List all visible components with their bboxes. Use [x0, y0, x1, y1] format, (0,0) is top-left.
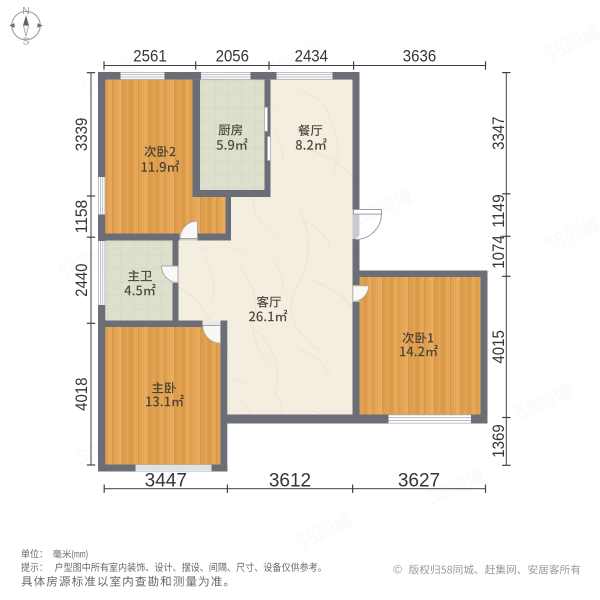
svg-text:3347: 3347 [489, 117, 508, 150]
svg-text:3447: 3447 [145, 471, 187, 492]
svg-text:4018: 4018 [72, 378, 91, 411]
svg-text:1369: 1369 [489, 424, 508, 457]
svg-text:3636: 3636 [403, 47, 436, 66]
svg-text:2434: 2434 [295, 47, 328, 66]
svg-text:4015: 4015 [489, 330, 508, 363]
svg-text:2056: 2056 [216, 47, 249, 66]
svg-text:N: N [22, 5, 30, 17]
svg-text:1074: 1074 [489, 235, 508, 268]
svg-text:3339: 3339 [72, 118, 91, 151]
svg-text:S: S [22, 36, 29, 48]
svg-text:3627: 3627 [398, 471, 440, 492]
svg-text:(mm): (mm) [72, 550, 89, 561]
svg-text:2561: 2561 [133, 47, 166, 66]
svg-text:3612: 3612 [269, 471, 311, 492]
svg-text:1149: 1149 [489, 194, 508, 227]
svg-text:1158: 1158 [72, 200, 91, 233]
svg-text:2440: 2440 [72, 264, 91, 297]
